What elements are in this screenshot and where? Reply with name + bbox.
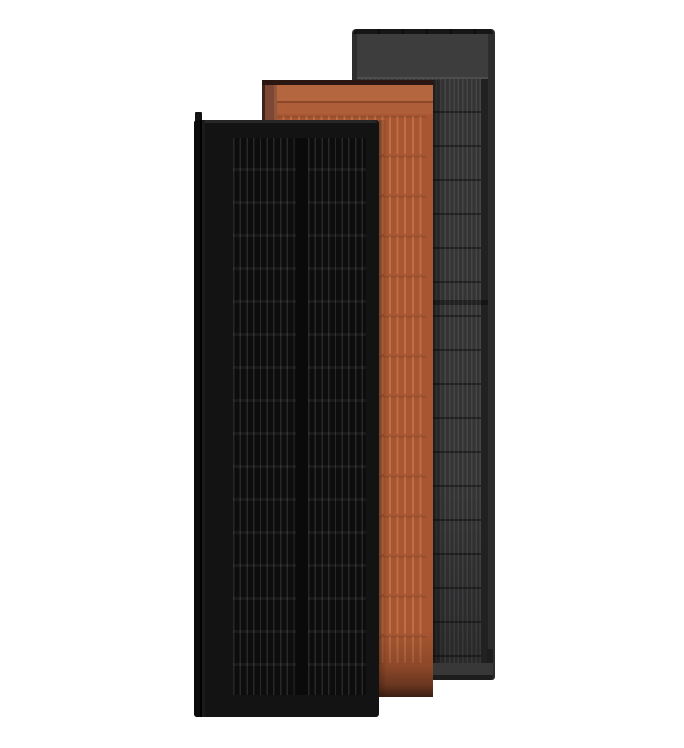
product-render-canvas — [0, 0, 684, 748]
terracotta-panel-top-flashing — [277, 85, 433, 114]
gray-panel-overlap-shadow — [433, 80, 444, 663]
solar-panel-black — [194, 120, 379, 717]
black-panel-cell-grid — [233, 138, 366, 695]
black-panel-top-lip — [200, 120, 377, 123]
gray-panel-top-flashing — [357, 34, 488, 79]
gray-panel-right-margin — [481, 79, 488, 663]
black-panel-left-edge-cap — [194, 120, 205, 717]
black-panel-cell-column-right — [308, 138, 366, 695]
gray-panel-corner-clip — [487, 649, 493, 663]
terracotta-panel-overlap-shadow — [379, 120, 387, 697]
black-panel-cell-column-left — [233, 138, 296, 695]
